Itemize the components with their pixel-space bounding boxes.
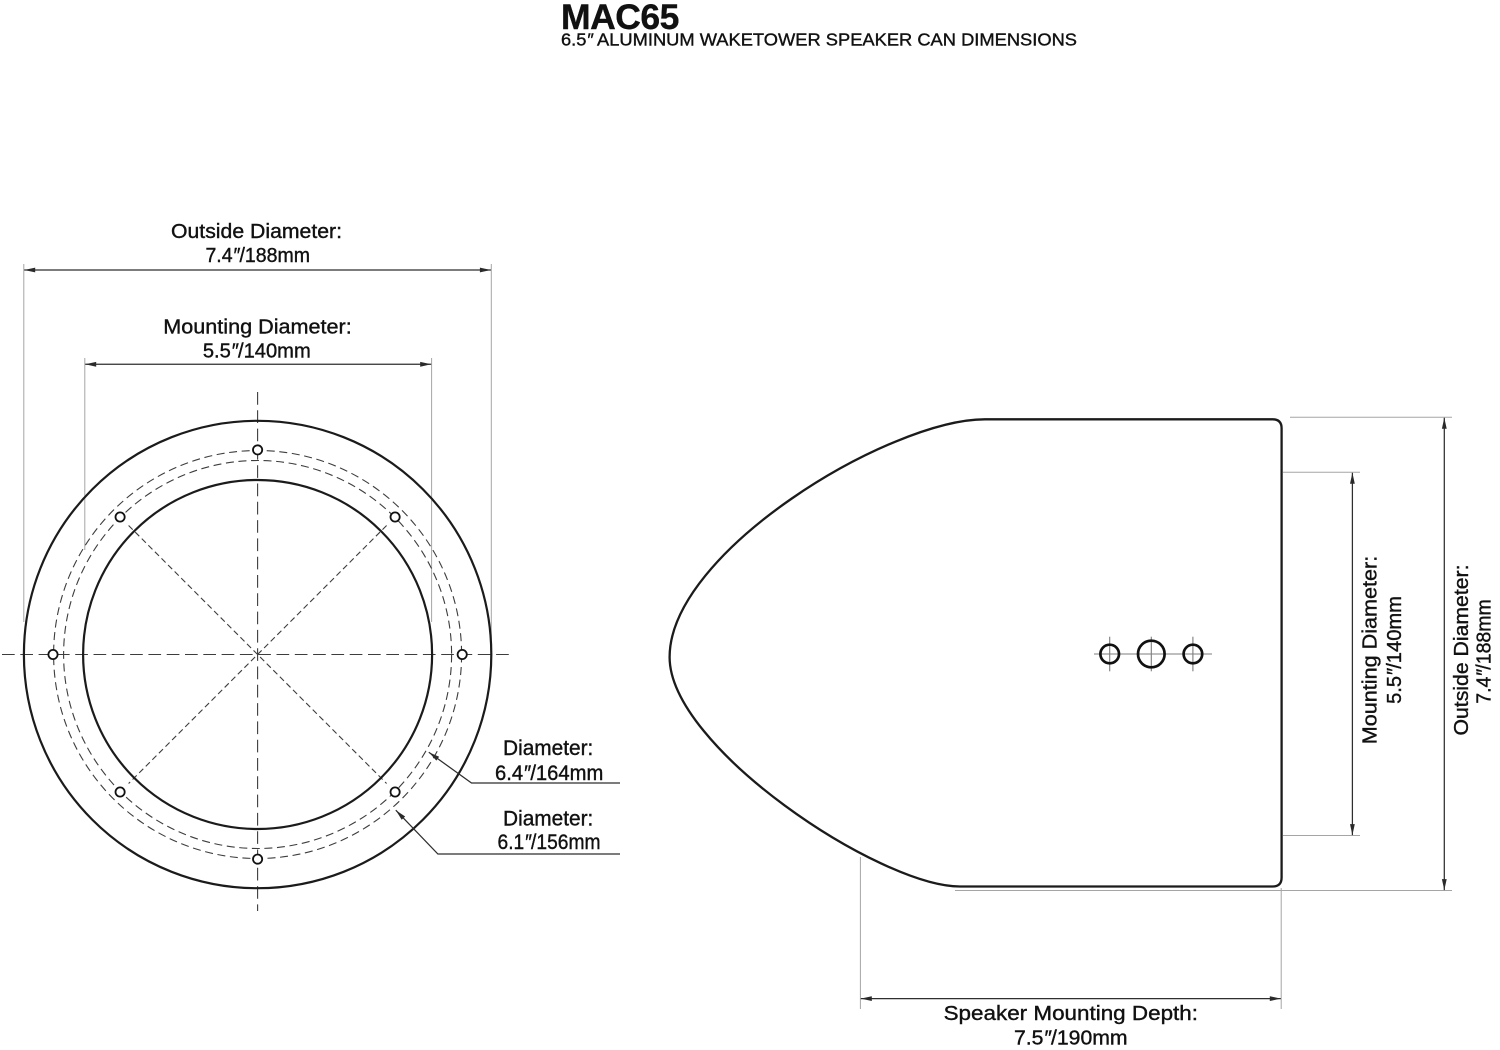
svg-text:6.1″/156mm: 6.1″/156mm xyxy=(498,831,601,854)
svg-text:7.5″/190mm: 7.5″/190mm xyxy=(1014,1027,1128,1049)
svg-text:Diameter:: Diameter: xyxy=(503,808,593,831)
svg-text:Speaker Mounting Depth:: Speaker Mounting Depth: xyxy=(944,1003,1198,1025)
svg-text:Outside Diameter:: Outside Diameter: xyxy=(171,221,342,243)
svg-text:Outside Diameter:: Outside Diameter: xyxy=(1451,565,1473,736)
svg-text:6.5″ ALUMINUM WAKETOWER SPEAKE: 6.5″ ALUMINUM WAKETOWER SPEAKER CAN DIME… xyxy=(561,30,1077,50)
svg-text:Mounting Diameter:: Mounting Diameter: xyxy=(163,317,352,339)
svg-text:7.4″/188mm: 7.4″/188mm xyxy=(1474,599,1496,704)
svg-text:5.5″/140mm: 5.5″/140mm xyxy=(1384,596,1406,704)
svg-text:6.4″/164mm: 6.4″/164mm xyxy=(495,762,603,785)
svg-text:5.5″/140mm: 5.5″/140mm xyxy=(203,340,311,362)
svg-text:7.4″/188mm: 7.4″/188mm xyxy=(205,245,310,267)
svg-text:Mounting Diameter:: Mounting Diameter: xyxy=(1359,556,1381,745)
svg-text:Diameter:: Diameter: xyxy=(503,737,593,760)
